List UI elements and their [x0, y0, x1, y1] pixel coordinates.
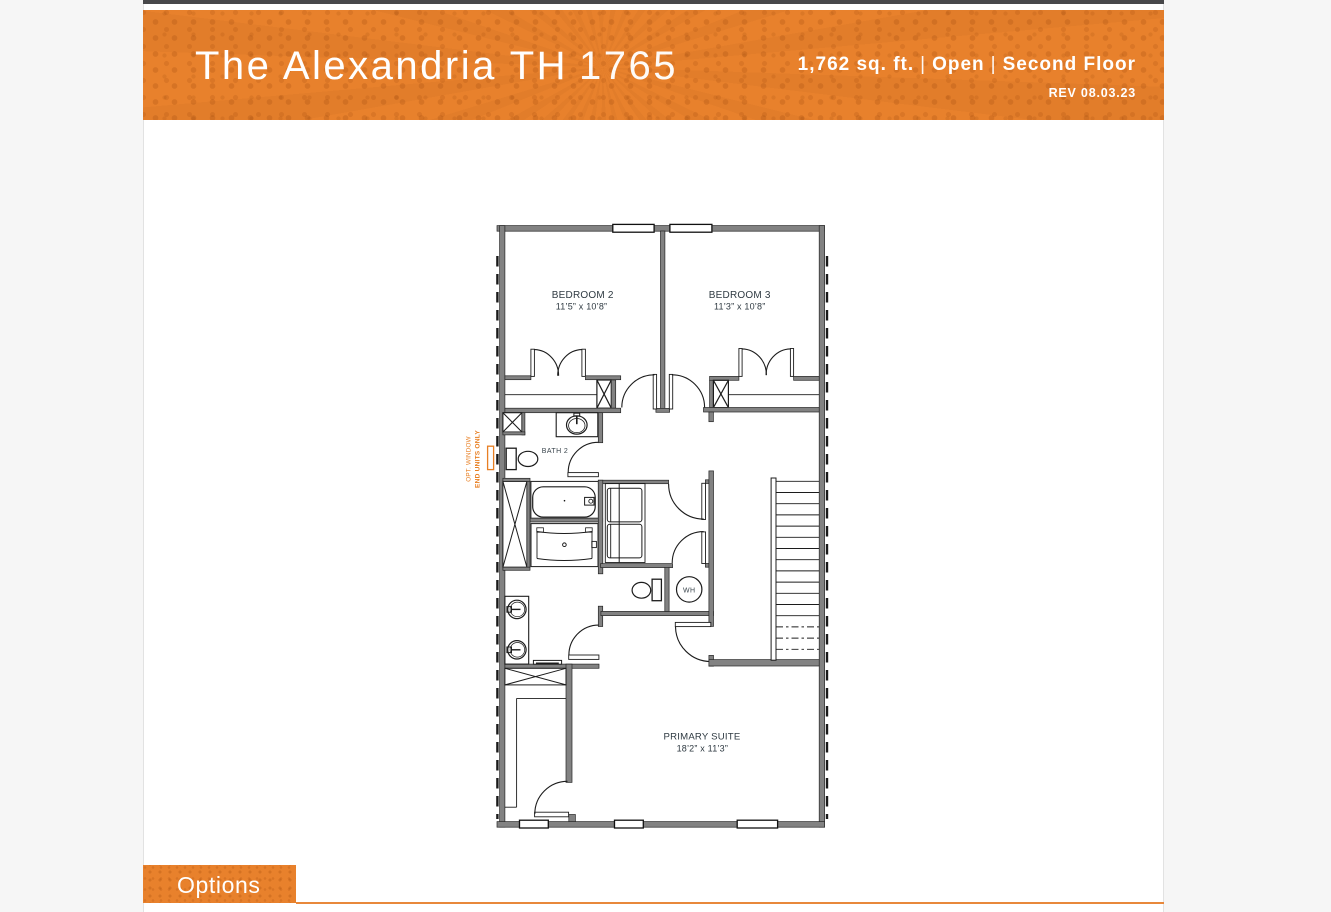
svg-text:BEDROOM 2: BEDROOM 2: [552, 290, 614, 301]
svg-text:WH: WH: [683, 587, 695, 594]
svg-text:11’3” x 10’8”: 11’3” x 10’8”: [714, 302, 765, 312]
svg-text:BEDROOM 3: BEDROOM 3: [709, 290, 771, 301]
svg-text:11’5” x 10’8”: 11’5” x 10’8”: [556, 302, 607, 312]
svg-text:END UNITS ONLY: END UNITS ONLY: [474, 430, 481, 488]
svg-text:BATH 2: BATH 2: [542, 448, 568, 455]
svg-text:OPT. WINDOW: OPT. WINDOW: [466, 436, 473, 482]
svg-text:PRIMARY SUITE: PRIMARY SUITE: [664, 732, 741, 743]
svg-text:18’2” x 11’3”: 18’2” x 11’3”: [677, 744, 728, 754]
